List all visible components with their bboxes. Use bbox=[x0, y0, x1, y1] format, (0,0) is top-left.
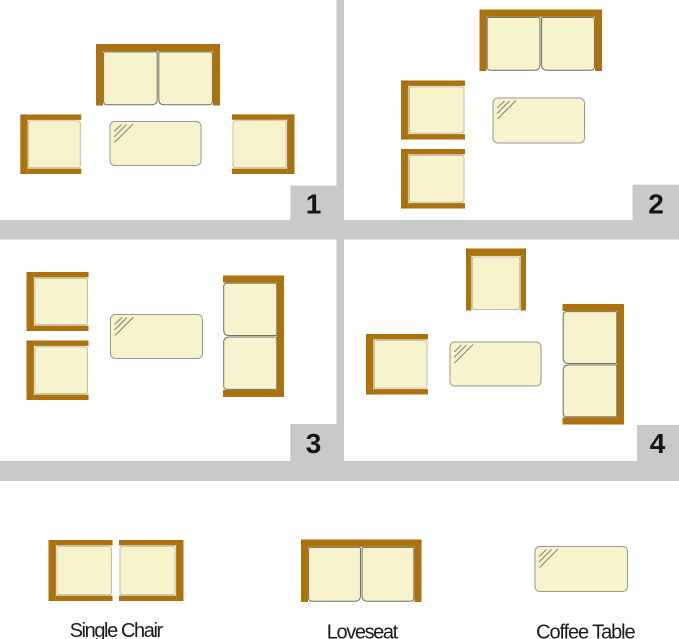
svg-text:Loveseat: Loveseat bbox=[327, 621, 399, 639]
svg-text:1: 1 bbox=[306, 189, 322, 220]
svg-text:2: 2 bbox=[648, 189, 664, 220]
svg-text:Single Chair: Single Chair bbox=[70, 620, 164, 639]
svg-text:3: 3 bbox=[306, 428, 322, 459]
svg-text:4: 4 bbox=[650, 428, 666, 459]
svg-text:Coffee Table: Coffee Table bbox=[536, 621, 635, 639]
